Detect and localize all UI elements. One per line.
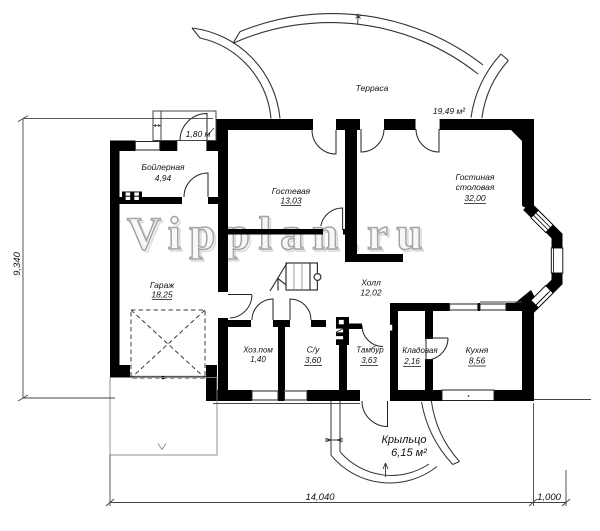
svg-text:Хоз.пом: Хоз.пом	[242, 346, 273, 355]
svg-text:3,60: 3,60	[305, 355, 322, 365]
svg-text:18,25: 18,25	[151, 290, 173, 300]
svg-text:12,02: 12,02	[360, 288, 382, 298]
svg-text:Тамбур: Тамбур	[356, 346, 384, 355]
svg-text:Холл: Холл	[360, 278, 381, 288]
svg-text:Кладовая: Кладовая	[402, 346, 438, 355]
svg-text:4,94: 4,94	[155, 173, 172, 183]
svg-text:3,63: 3,63	[361, 356, 377, 365]
svg-text:2,16: 2,16	[403, 357, 420, 366]
svg-text:1,40: 1,40	[250, 355, 266, 364]
svg-text:Кухня: Кухня	[466, 345, 489, 355]
svg-text:19,49 м²: 19,49 м²	[433, 106, 466, 116]
svg-text:Гостевая: Гостевая	[272, 186, 311, 196]
svg-text:Бойлерная: Бойлерная	[141, 162, 185, 172]
svg-text:14,040: 14,040	[305, 492, 335, 503]
svg-text:9,340: 9,340	[12, 251, 23, 275]
svg-text:6,15 м²: 6,15 м²	[391, 447, 427, 459]
svg-text:столовая: столовая	[456, 182, 495, 192]
svg-text:13,03: 13,03	[280, 196, 302, 206]
svg-text:32,00: 32,00	[464, 193, 486, 203]
svg-text:Гараж: Гараж	[150, 280, 176, 290]
svg-text:С/у: С/у	[307, 345, 321, 355]
svg-text:1,000: 1,000	[537, 492, 561, 503]
svg-text:8,56: 8,56	[469, 356, 486, 366]
svg-text:Крыльцо: Крыльцо	[381, 434, 426, 446]
svg-text:1,80 м: 1,80 м	[186, 129, 211, 139]
svg-text:Гостиная: Гостиная	[456, 172, 495, 182]
svg-text:Терраса: Терраса	[356, 83, 389, 93]
